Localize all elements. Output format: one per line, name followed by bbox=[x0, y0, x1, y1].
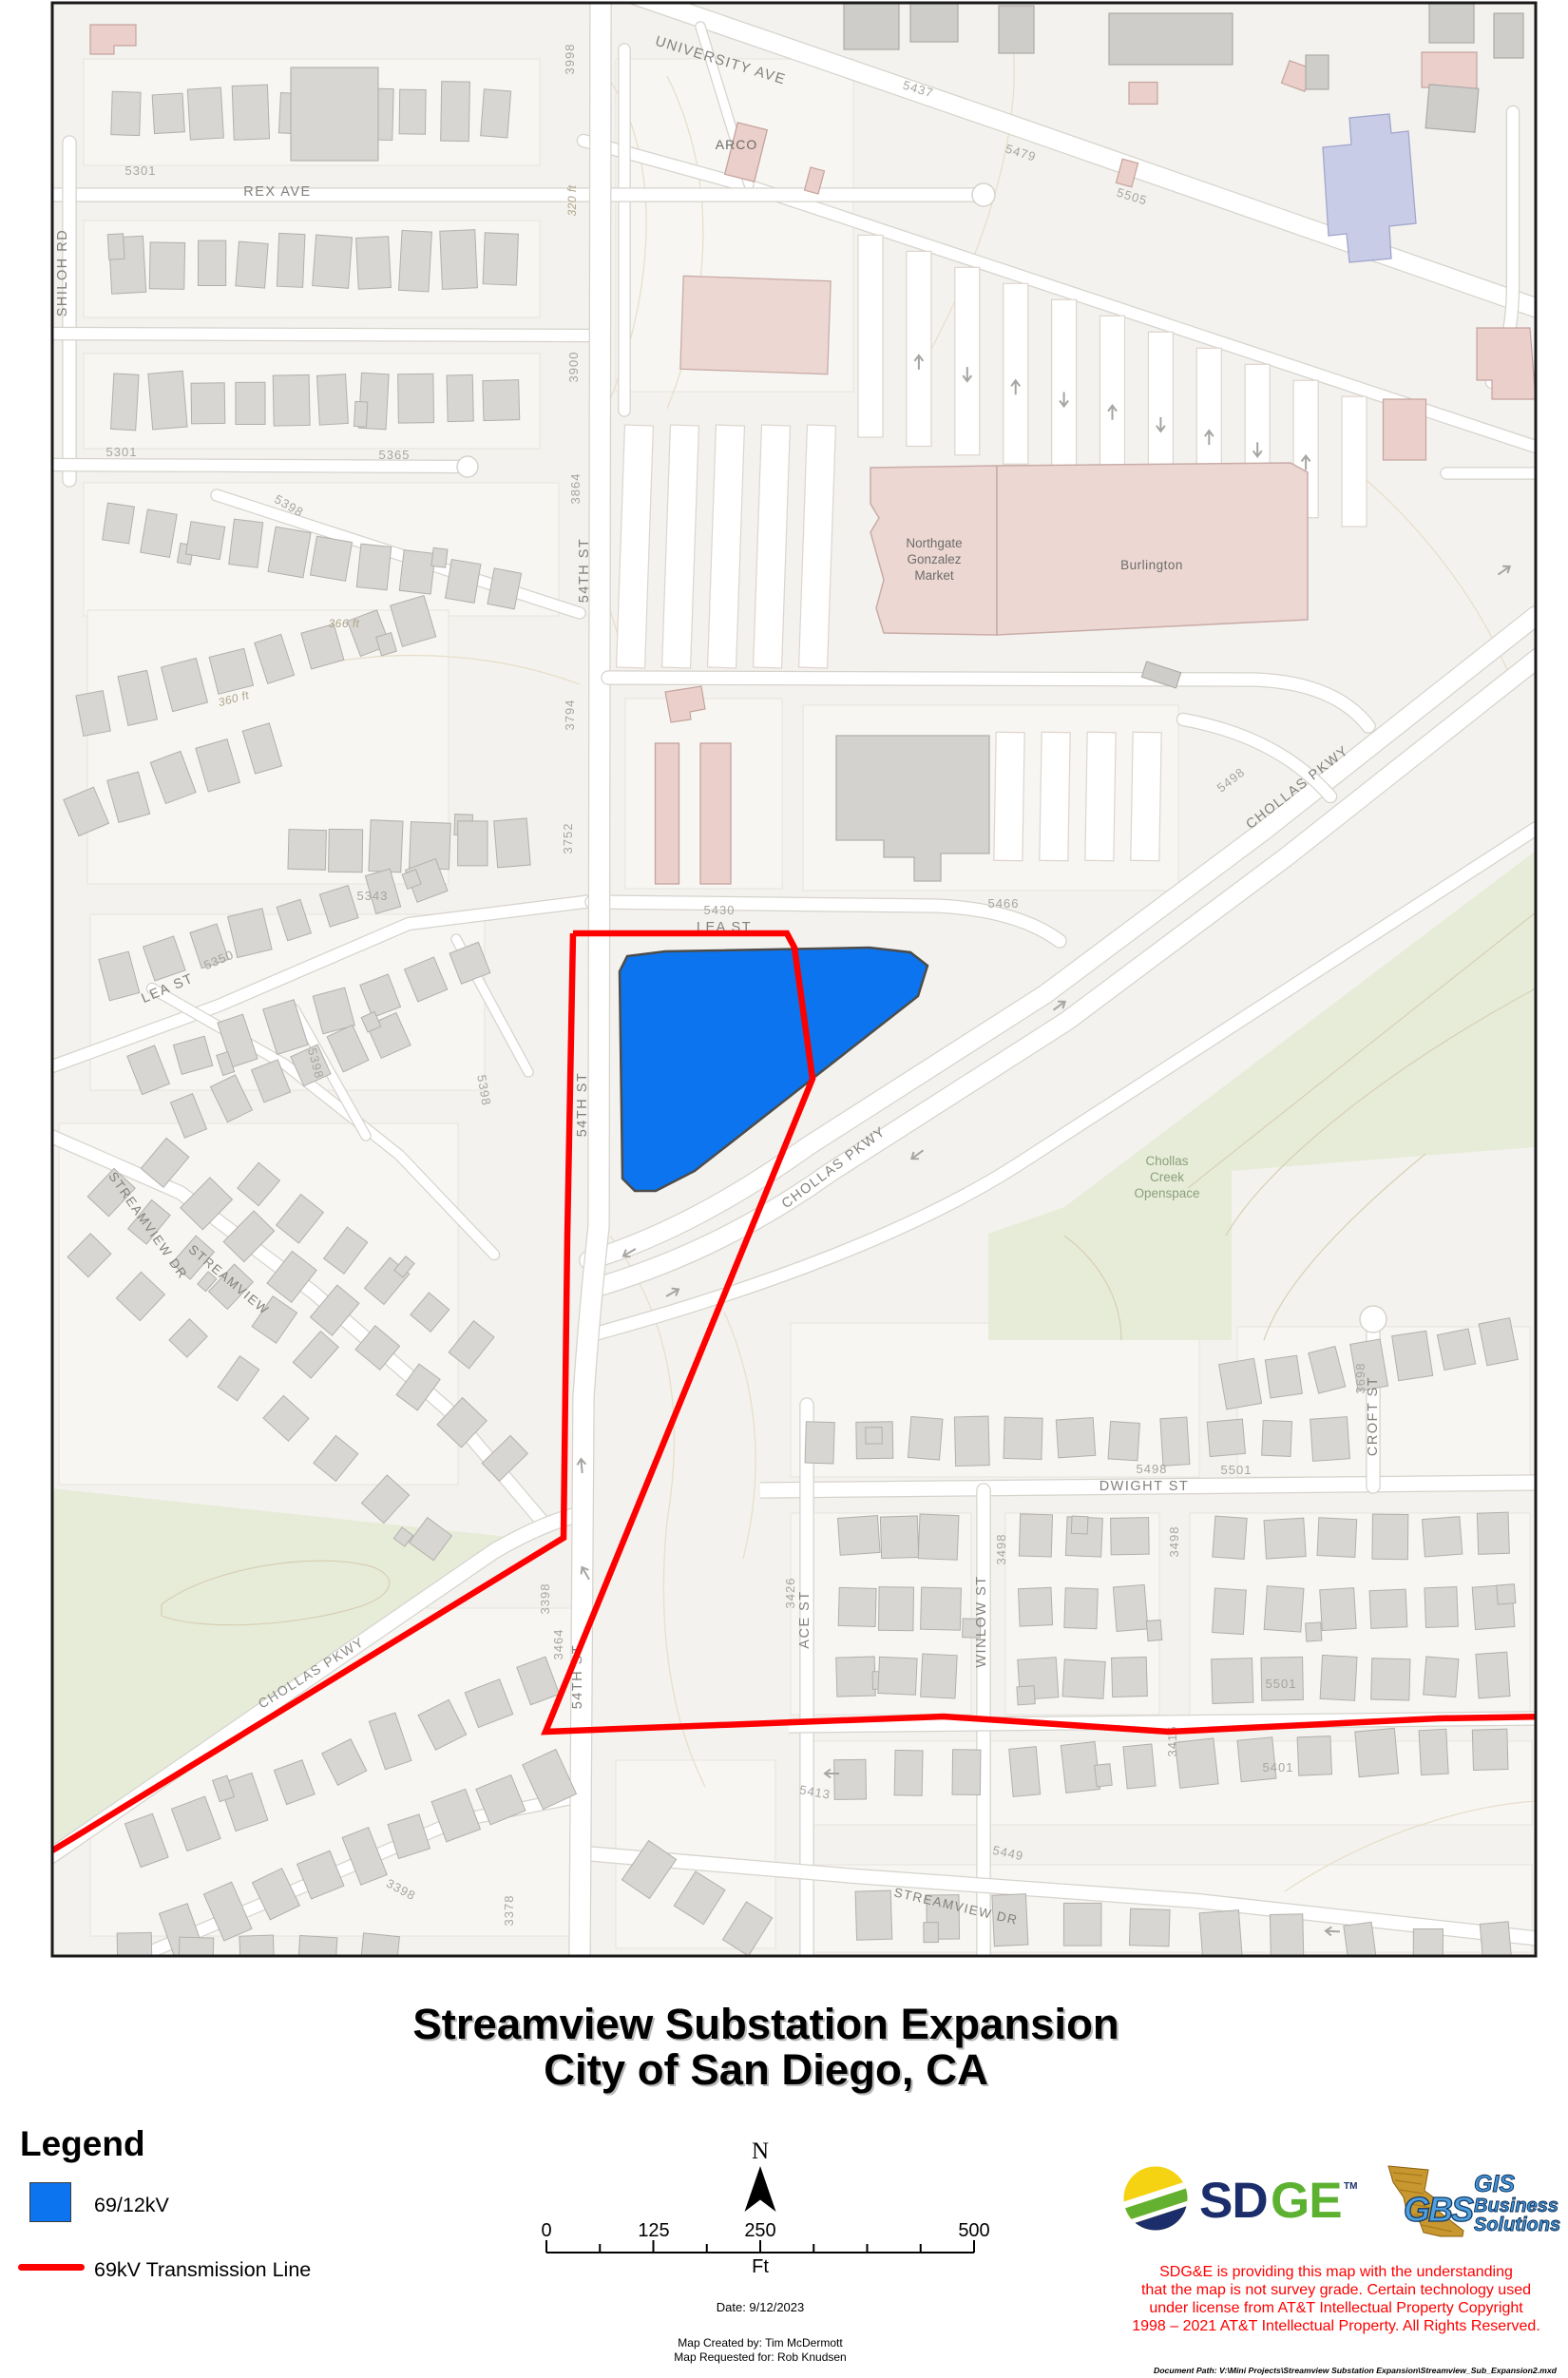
svg-text:3378: 3378 bbox=[502, 1895, 516, 1927]
svg-text:5401: 5401 bbox=[1263, 1760, 1294, 1774]
svg-text:Chollas: Chollas bbox=[1145, 1154, 1188, 1168]
svg-text:5501: 5501 bbox=[1221, 1463, 1252, 1477]
svg-text:REX AVE: REX AVE bbox=[243, 184, 311, 200]
svg-text:Northgate: Northgate bbox=[906, 536, 962, 550]
svg-text:3498: 3498 bbox=[1167, 1526, 1181, 1558]
svg-text:5365: 5365 bbox=[379, 448, 411, 462]
svg-text:CROFT ST: CROFT ST bbox=[1366, 1376, 1381, 1456]
svg-text:ACE ST: ACE ST bbox=[797, 1590, 813, 1648]
svg-text:SHILOH RD: SHILOH RD bbox=[55, 229, 70, 316]
svg-text:3900: 3900 bbox=[566, 352, 581, 383]
svg-text:TM: TM bbox=[1344, 2181, 1357, 2192]
svg-text:5501: 5501 bbox=[1266, 1677, 1297, 1691]
svg-text:DWIGHT ST: DWIGHT ST bbox=[1100, 1479, 1190, 1494]
svg-text:N: N bbox=[752, 2138, 769, 2164]
svg-text:5301: 5301 bbox=[106, 445, 138, 459]
svg-text:Gonzalez: Gonzalez bbox=[907, 552, 961, 566]
svg-text:54TH ST: 54TH ST bbox=[575, 1072, 590, 1138]
svg-text:3752: 3752 bbox=[561, 823, 575, 854]
svg-text:SD: SD bbox=[1199, 2173, 1268, 2229]
svg-text:Solutions: Solutions bbox=[1474, 2215, 1560, 2235]
svg-text:320 ft: 320 ft bbox=[565, 184, 579, 216]
svg-text:3426: 3426 bbox=[783, 1578, 797, 1609]
svg-text:3794: 3794 bbox=[563, 700, 577, 731]
svg-text:Creek: Creek bbox=[1150, 1170, 1184, 1184]
svg-text:366 ft: 366 ft bbox=[328, 617, 359, 630]
svg-text:WINLOW ST: WINLOW ST bbox=[974, 1575, 989, 1667]
svg-text:Market: Market bbox=[914, 568, 954, 583]
svg-text:5466: 5466 bbox=[988, 896, 1020, 911]
svg-text:GE: GE bbox=[1271, 2173, 1342, 2229]
svg-text:54TH ST: 54TH ST bbox=[577, 538, 592, 604]
svg-text:3864: 3864 bbox=[568, 473, 583, 505]
svg-text:5301: 5301 bbox=[125, 163, 157, 178]
svg-text:Burlington: Burlington bbox=[1120, 558, 1183, 572]
svg-text:ARCO: ARCO bbox=[716, 137, 757, 152]
svg-text:3464: 3464 bbox=[551, 1629, 565, 1660]
svg-text:GBS: GBS bbox=[1404, 2190, 1474, 2229]
svg-text:5343: 5343 bbox=[357, 889, 389, 903]
svg-text:3498: 3498 bbox=[994, 1534, 1008, 1565]
svg-text:GIS: GIS bbox=[1474, 2171, 1515, 2197]
svg-text:Openspace: Openspace bbox=[1134, 1186, 1199, 1200]
svg-text:Business: Business bbox=[1474, 2196, 1558, 2216]
svg-text:5430: 5430 bbox=[704, 903, 736, 917]
svg-text:3998: 3998 bbox=[563, 44, 577, 75]
svg-text:3698: 3698 bbox=[1353, 1363, 1367, 1394]
svg-text:3398: 3398 bbox=[538, 1583, 552, 1615]
svg-text:5498: 5498 bbox=[1137, 1462, 1168, 1476]
